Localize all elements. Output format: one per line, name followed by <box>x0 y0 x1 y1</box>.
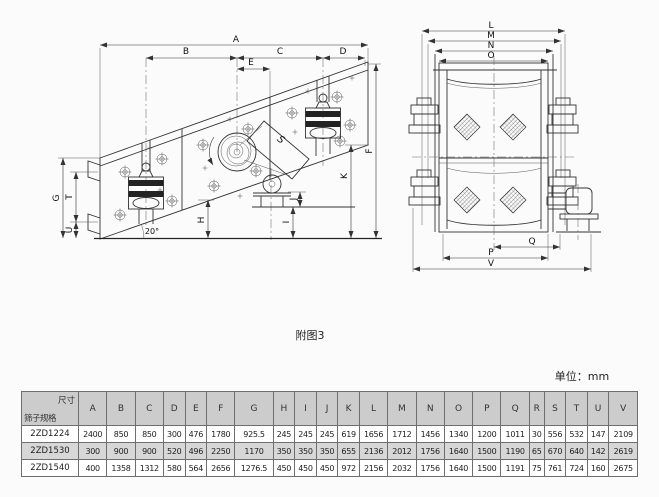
dim-cell: 400 <box>79 460 107 477</box>
column-header: L <box>359 392 387 426</box>
dim-cell: 450 <box>273 460 295 477</box>
dim-label-b: B <box>183 47 189 57</box>
column-header: R <box>529 392 544 426</box>
column-header: H <box>273 392 295 426</box>
dim-cell: 300 <box>79 443 107 460</box>
dim-label-f: F <box>365 148 375 153</box>
dim-cell: 1456 <box>416 426 444 443</box>
dim-cell: 2109 <box>609 426 638 443</box>
dim-cell: 142 <box>587 443 609 460</box>
dim-cell: 670 <box>544 443 566 460</box>
dim-cell: 1312 <box>135 460 163 477</box>
column-header: G <box>235 392 273 426</box>
dim-cell: 1712 <box>388 426 416 443</box>
dim-label-a: A <box>233 35 240 45</box>
column-header: P <box>473 392 501 426</box>
dim-cell: 160 <box>587 460 609 477</box>
model-cell: 2ZD1530 <box>22 443 79 460</box>
dim-cell: 2656 <box>207 460 235 477</box>
dim-cell: 496 <box>185 443 207 460</box>
feed-bracket <box>88 161 100 181</box>
corner-label-dimension: 尺寸 <box>58 394 75 406</box>
corner-label-model: 筛子规格 <box>24 412 56 424</box>
unit-label: 单位：mm <box>532 368 632 384</box>
column-header: K <box>338 392 360 426</box>
dim-cell: 1011 <box>501 426 529 443</box>
model-cell: 2ZD1540 <box>22 460 79 477</box>
dim-cell: 564 <box>185 460 207 477</box>
dim-cell: 1640 <box>444 460 472 477</box>
column-header: C <box>135 392 163 426</box>
dim-label-g: G <box>52 194 62 201</box>
mesh-symbol <box>454 114 480 140</box>
column-header: T <box>566 392 588 426</box>
feed-bracket <box>88 214 100 234</box>
dim-label-c: C <box>277 47 283 57</box>
dim-cell: 1340 <box>444 426 472 443</box>
dim-cell: 30 <box>529 426 544 443</box>
dim-cell: 2675 <box>609 460 638 477</box>
column-header: O <box>444 392 472 426</box>
dim-cell: 245 <box>273 426 295 443</box>
side-view: A B C D E <box>52 35 382 240</box>
dim-cell: 520 <box>163 443 185 460</box>
dimension-table: 尺寸 筛子规格 ABCDEFGHIJKLMNOPQRSTUV 2ZD122424… <box>21 391 638 477</box>
dim-cell: 245 <box>295 426 317 443</box>
table-header-row: 尺寸 筛子规格 ABCDEFGHIJKLMNOPQRSTUV <box>22 392 638 426</box>
dim-cell: 1756 <box>416 460 444 477</box>
dim-cell: 1200 <box>473 426 501 443</box>
dim-cell: 1640 <box>444 443 472 460</box>
dim-cell: 900 <box>107 443 135 460</box>
dim-cell: 1170 <box>235 443 273 460</box>
dim-label-q: Q <box>528 237 535 247</box>
dim-cell: 532 <box>566 426 588 443</box>
dim-cell: 972 <box>338 460 360 477</box>
dim-cell: 476 <box>185 426 207 443</box>
dim-cell: 450 <box>316 460 338 477</box>
dim-label-m: M <box>487 31 495 41</box>
column-header: F <box>207 392 235 426</box>
dim-cell: 2619 <box>609 443 638 460</box>
dim-cell: 1358 <box>107 460 135 477</box>
dim-cell: 1276.5 <box>235 460 273 477</box>
dim-label-s: S <box>275 134 287 147</box>
mesh-symbol <box>500 114 526 140</box>
dim-cell: 245 <box>316 426 338 443</box>
dim-cell: 761 <box>544 460 566 477</box>
angle-label: 20° <box>145 227 159 236</box>
dim-cell: 655 <box>338 443 360 460</box>
dim-cell: 350 <box>316 443 338 460</box>
dim-cell: 2156 <box>359 460 387 477</box>
dim-cell: 1190 <box>501 443 529 460</box>
dim-cell: 850 <box>135 426 163 443</box>
dim-label-n: N <box>488 41 495 51</box>
dim-cell: 1780 <box>207 426 235 443</box>
figure-page: A B C D E <box>0 0 659 497</box>
dim-cell: 2032 <box>388 460 416 477</box>
dim-cell: 724 <box>566 460 588 477</box>
column-header: I <box>295 392 317 426</box>
rotation-arrow-icon <box>209 137 214 165</box>
dim-cell: 2012 <box>388 443 416 460</box>
column-header: V <box>609 392 638 426</box>
column-header: Q <box>501 392 529 426</box>
column-header: E <box>185 392 207 426</box>
model-cell: 2ZD1224 <box>22 426 79 443</box>
mesh-symbol <box>454 187 480 213</box>
dim-cell: 619 <box>338 426 360 443</box>
dim-cell: 300 <box>163 426 185 443</box>
dim-cell: 2136 <box>359 443 387 460</box>
column-header: J <box>316 392 338 426</box>
table-corner-cell: 尺寸 筛子规格 <box>22 392 79 426</box>
dim-cell: 350 <box>273 443 295 460</box>
dim-label-p: P <box>488 248 494 258</box>
dim-label-t: T <box>65 194 75 201</box>
dim-label-v: V <box>488 259 495 269</box>
column-header: N <box>416 392 444 426</box>
spring-bracket <box>547 170 578 205</box>
column-header: D <box>163 392 185 426</box>
dim-cell: 65 <box>529 443 544 460</box>
dim-cell: 900 <box>135 443 163 460</box>
column-header: U <box>587 392 609 426</box>
dim-label-j: J <box>289 198 299 202</box>
dim-label-i: I <box>282 221 292 224</box>
dim-cell: 1656 <box>359 426 387 443</box>
dim-cell: 580 <box>163 460 185 477</box>
table-row: 2ZD15404001358131258056426561276.5450450… <box>22 460 638 477</box>
dim-cell: 640 <box>566 443 588 460</box>
dim-label-d: D <box>340 47 347 57</box>
dim-cell: 925.5 <box>235 426 273 443</box>
mesh-symbol <box>500 187 526 213</box>
table-row: 2ZD1530300900900520496225011703503503506… <box>22 443 638 460</box>
dim-label-k: K <box>340 172 350 179</box>
screen-body <box>100 62 368 239</box>
spring-bracket <box>547 98 578 133</box>
dim-cell: 1756 <box>416 443 444 460</box>
dim-cell: 1500 <box>473 460 501 477</box>
front-view: L M N O <box>409 21 601 272</box>
column-header: M <box>388 392 416 426</box>
figure-caption: 附图3 <box>275 327 345 343</box>
dim-cell: 2250 <box>207 443 235 460</box>
dim-label-u: U <box>65 227 75 234</box>
dim-cell: 2400 <box>79 426 107 443</box>
dim-label-e: E <box>248 58 254 68</box>
dim-label-h: H <box>197 217 207 224</box>
dim-cell: 850 <box>107 426 135 443</box>
dim-cell: 450 <box>295 460 317 477</box>
table-row: 2ZD122424008508503004761780925.524524524… <box>22 426 638 443</box>
column-header: B <box>107 392 135 426</box>
column-header: A <box>79 392 107 426</box>
dim-label-l: L <box>488 21 493 31</box>
motor <box>548 184 601 240</box>
dim-cell: 350 <box>295 443 317 460</box>
column-header: S <box>544 392 566 426</box>
dim-cell: 147 <box>587 426 609 443</box>
dim-cell: 75 <box>529 460 544 477</box>
dim-cell: 1191 <box>501 460 529 477</box>
dim-label-o: O <box>487 51 494 61</box>
dim-cell: 1500 <box>473 443 501 460</box>
dim-cell: 556 <box>544 426 566 443</box>
